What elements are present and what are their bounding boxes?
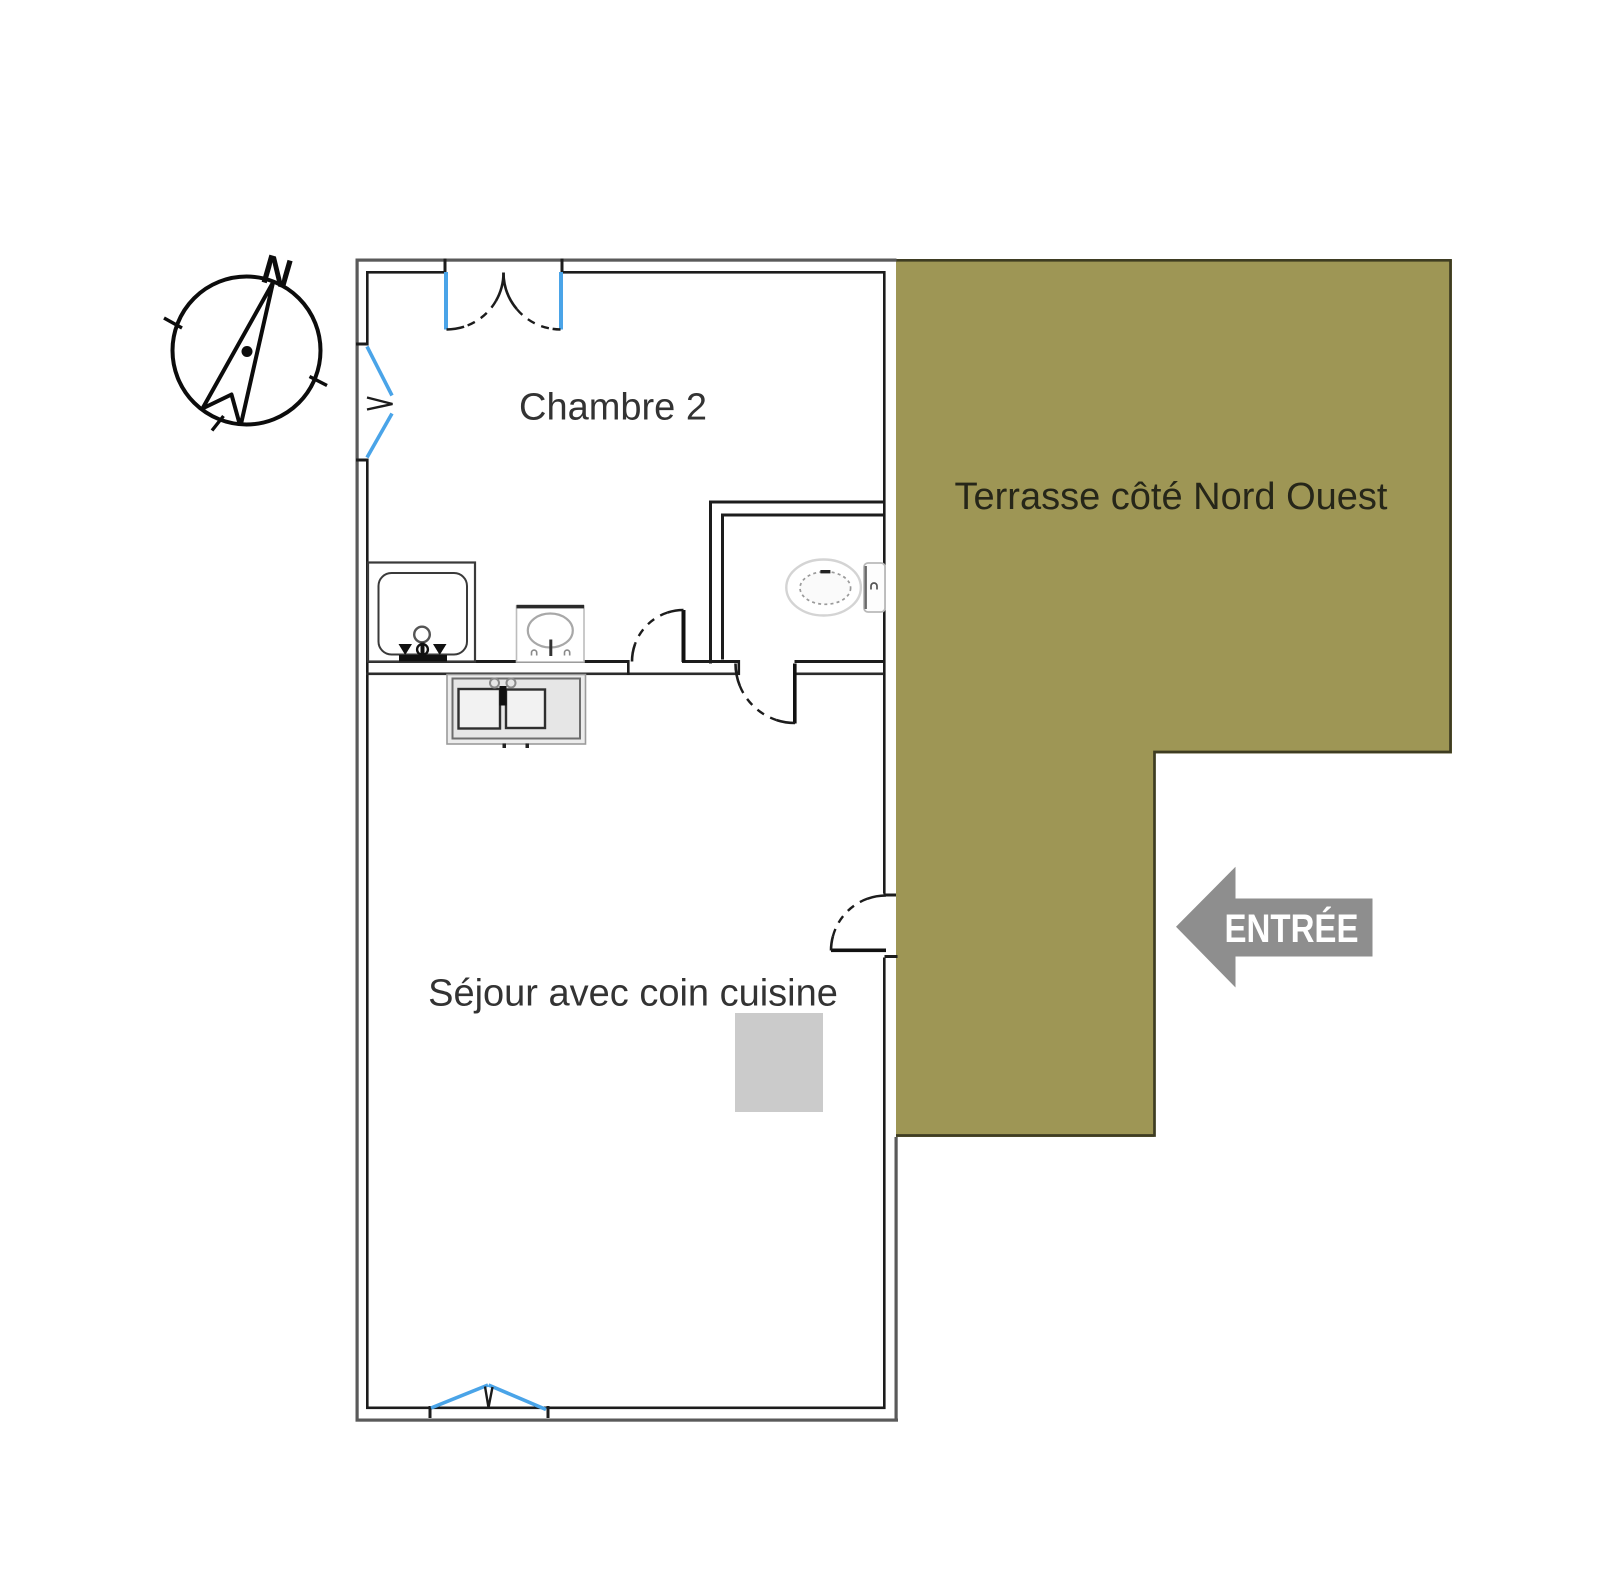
svg-text:Séjour avec coin cuisine: Séjour avec coin cuisine <box>428 973 838 1015</box>
svg-text:Terrasse côté Nord Ouest: Terrasse côté Nord Ouest <box>955 476 1388 518</box>
svg-text:ENTRÉE: ENTRÉE <box>1225 906 1359 951</box>
svg-text:Chambre 2: Chambre 2 <box>519 387 707 429</box>
